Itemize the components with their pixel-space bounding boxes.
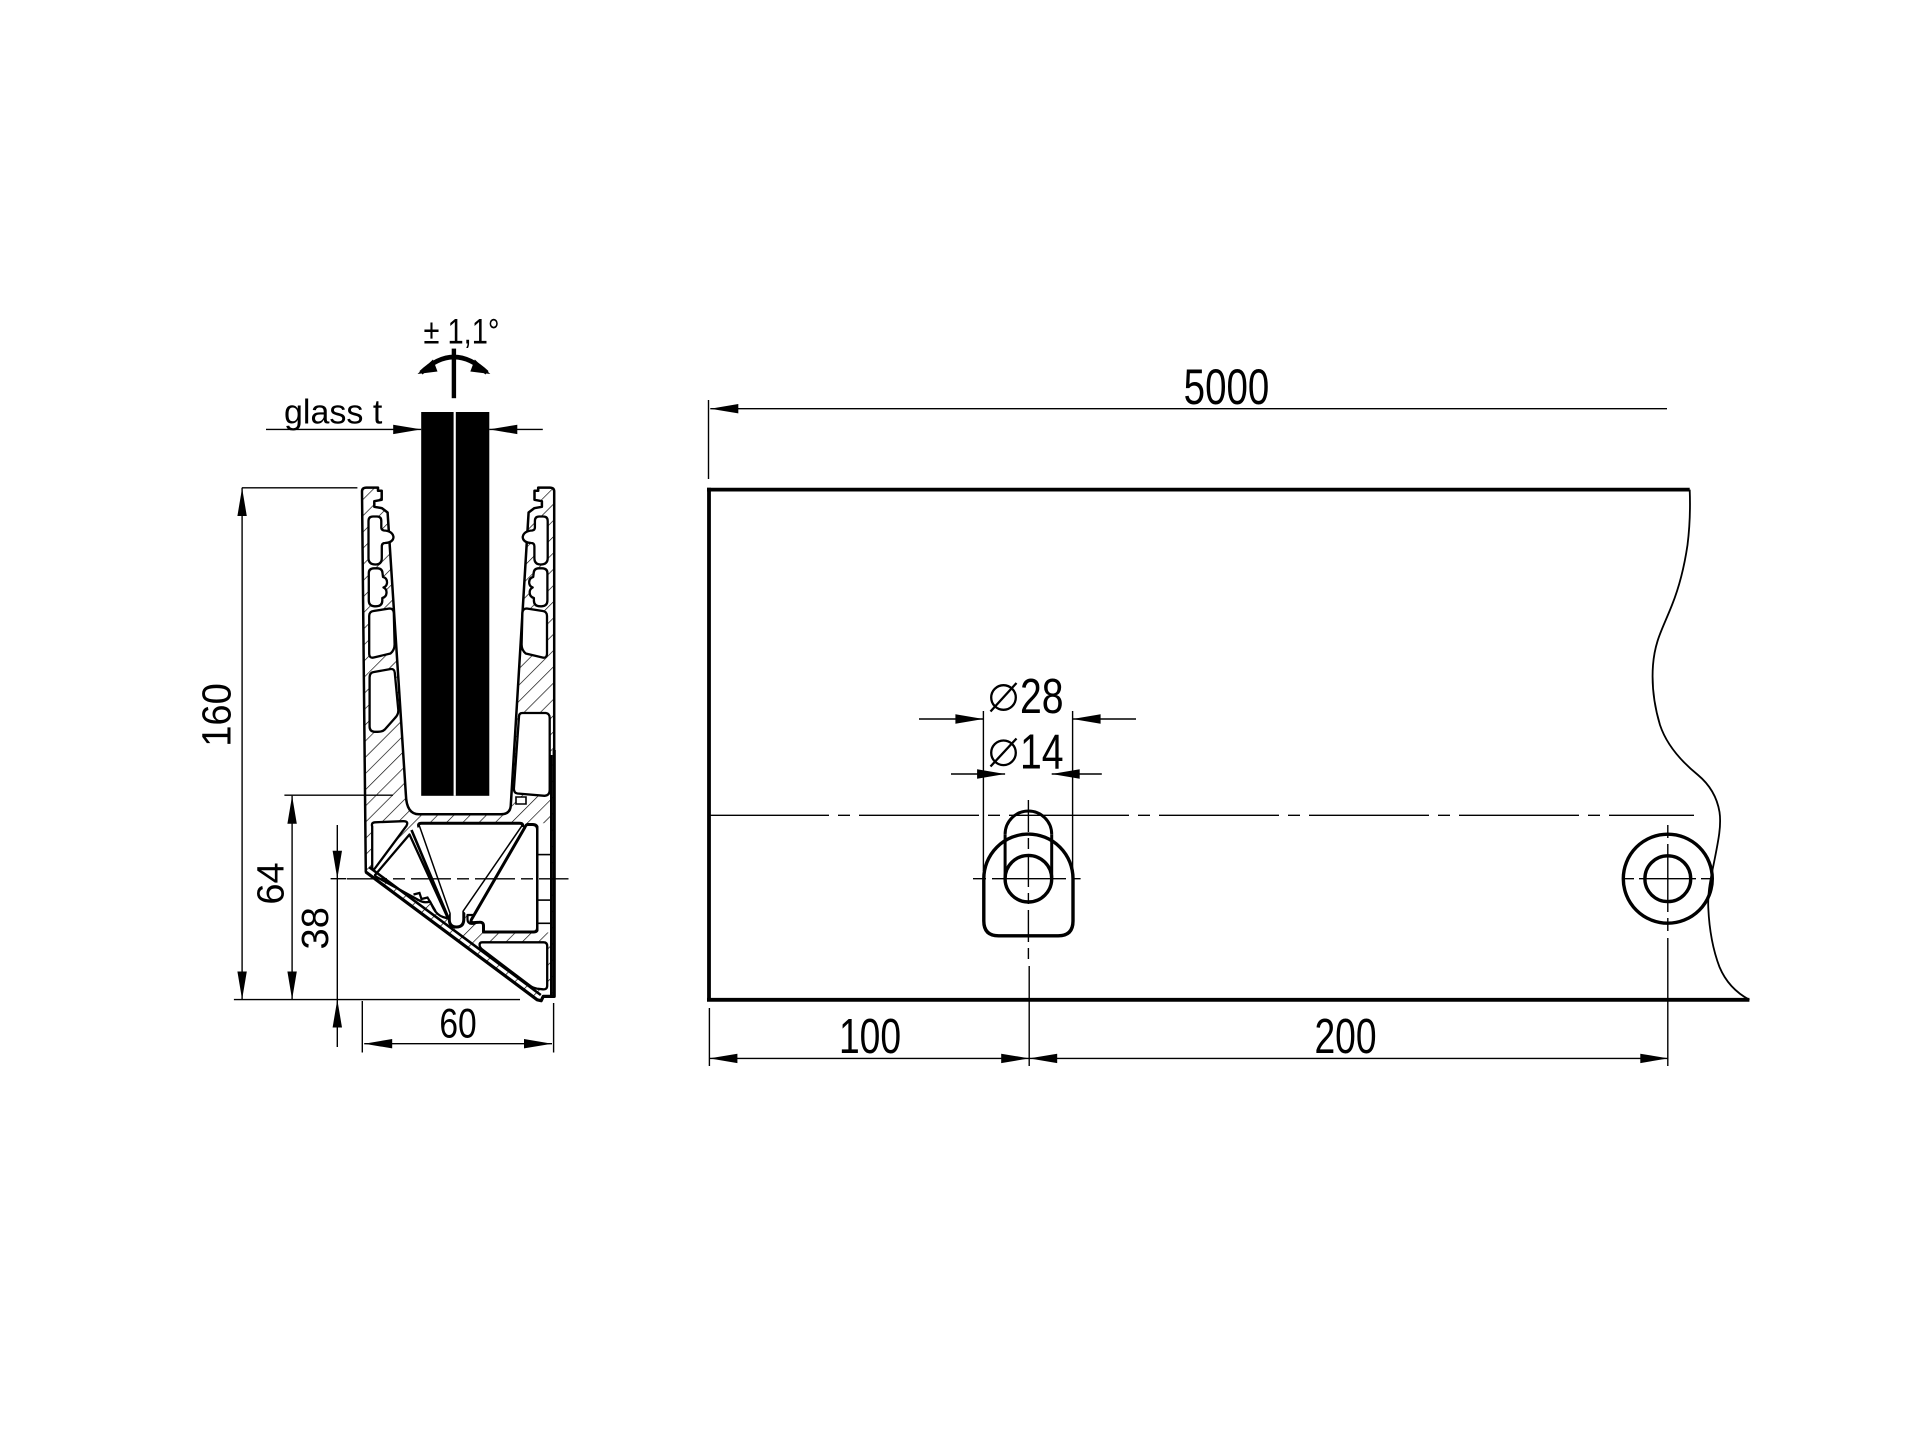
svg-text:± 1,1°: ± 1,1° <box>423 312 499 351</box>
svg-text:28: 28 <box>1020 670 1064 724</box>
svg-text:glass t: glass t <box>284 394 383 432</box>
svg-text:160: 160 <box>194 683 240 747</box>
svg-text:64: 64 <box>251 862 293 904</box>
svg-text:60: 60 <box>439 1001 476 1047</box>
svg-text:14: 14 <box>1020 725 1064 779</box>
svg-text:38: 38 <box>295 907 337 949</box>
svg-text:100: 100 <box>839 1010 901 1064</box>
svg-text:200: 200 <box>1314 1010 1376 1064</box>
svg-text:5000: 5000 <box>1184 360 1270 415</box>
